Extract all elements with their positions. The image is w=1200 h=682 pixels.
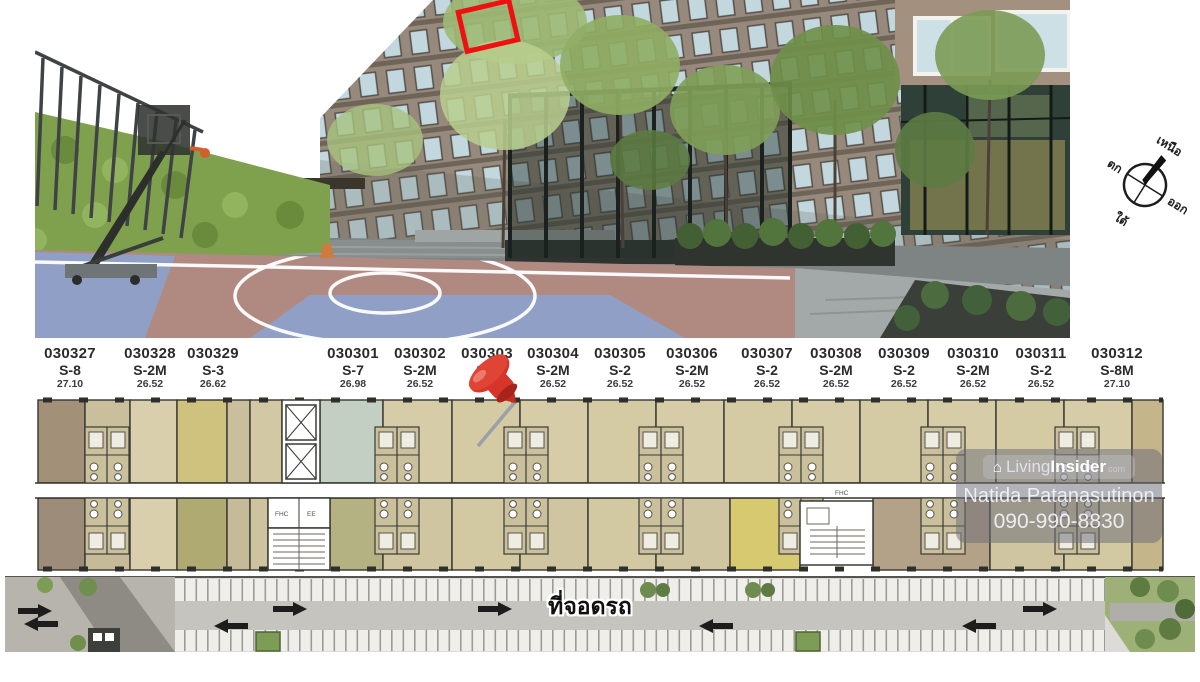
unit-type: S-2 <box>727 362 807 378</box>
unit-area: 27.10 <box>30 378 110 390</box>
unit-label-030305: 030305S-226.52 <box>580 345 660 390</box>
stairwell-right: FHC <box>800 490 873 565</box>
unit-label-030311: 030311S-226.52 <box>1001 345 1081 390</box>
location-pin <box>455 350 575 455</box>
unit-type: S-3 <box>173 362 253 378</box>
unit-area: 26.52 <box>652 378 732 390</box>
unit-label-030329: 030329S-326.62 <box>173 345 253 390</box>
unit-label-030307: 030307S-226.52 <box>727 345 807 390</box>
unit-number: 030307 <box>727 345 807 362</box>
unit-number: 030306 <box>652 345 732 362</box>
unit-type: S-2 <box>864 362 944 378</box>
unit-type: S-2M <box>652 362 732 378</box>
brand-insider: Insider <box>1050 457 1106 476</box>
agent-name: Natida Patanasutinon <box>956 483 1162 509</box>
watermark-brand: ⌂LivingInsidercom <box>983 455 1135 479</box>
elevator-core <box>282 400 320 483</box>
unit-label-030312: 030312S-8M27.10 <box>1077 345 1157 390</box>
unit-type: S-8M <box>1077 362 1157 378</box>
real-estate-listing-image: เหนือ ใต้ ตก ออก 030327S-827.10 030328S-… <box>0 0 1200 682</box>
compass-south-label: ใต้ <box>1112 209 1132 229</box>
compass-west-label: ตก <box>1105 156 1125 176</box>
unit-type: S-2 <box>1001 362 1081 378</box>
unit-number: 030311 <box>1001 345 1081 362</box>
kiosk <box>88 628 120 652</box>
compass-east-label: ออก <box>1165 194 1191 217</box>
unit-label-030309: 030309S-226.52 <box>864 345 944 390</box>
unit-number: 030305 <box>580 345 660 362</box>
brand-living: Living <box>1006 457 1050 476</box>
unit-type: S-8 <box>30 362 110 378</box>
unit-area: 26.52 <box>580 378 660 390</box>
unit-area: 26.52 <box>1001 378 1081 390</box>
unit-number: 030309 <box>864 345 944 362</box>
compass-north-label: เหนือ <box>1154 133 1185 159</box>
unit-label-030306: 030306S-2M26.52 <box>652 345 732 390</box>
ee-label: EE <box>307 511 316 518</box>
parking-label: ที่จอดรถ <box>520 589 660 625</box>
stairwell-left: FHC EE <box>268 498 330 570</box>
site-photo <box>35 0 1070 338</box>
watermark: ⌂LivingInsidercom Natida Patanasutinon 0… <box>956 449 1162 543</box>
unit-number: 030327 <box>30 345 110 362</box>
unit-label-030327: 030327S-827.10 <box>30 345 110 390</box>
unit-area: 27.10 <box>1077 378 1157 390</box>
fhc-label: FHC <box>275 511 289 518</box>
parking-stalls-bottom <box>175 630 1105 651</box>
house-logo-icon: ⌂ <box>993 459 1002 476</box>
unit-number: 030329 <box>173 345 253 362</box>
agent-phone: 090-990-8830 <box>956 509 1162 535</box>
unit-number: 030312 <box>1077 345 1157 362</box>
brand-suffix: com <box>1108 464 1125 474</box>
unit-area: 26.62 <box>173 378 253 390</box>
compass-needle <box>1141 154 1167 188</box>
unit-type: S-2 <box>580 362 660 378</box>
fhc-label: FHC <box>835 490 849 497</box>
unit-area: 26.52 <box>864 378 944 390</box>
compass-icon: เหนือ ใต้ ตก ออก <box>1083 125 1200 245</box>
driveway-zone <box>5 577 175 652</box>
unit-area: 26.52 <box>727 378 807 390</box>
